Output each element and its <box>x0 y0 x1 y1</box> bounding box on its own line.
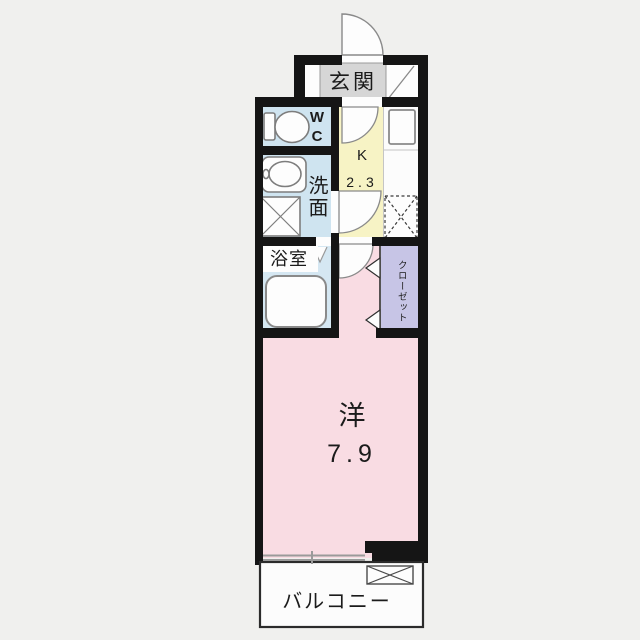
balcony-unit-icon <box>367 566 413 584</box>
floorplan-canvas: 玄関 WC 洗面 K 2.3 浴室 クローゼット 洋 7.9 バルコニー <box>0 0 640 640</box>
appliance-space-hatch-icon <box>385 196 417 238</box>
sink-icon <box>262 157 306 192</box>
washer-pan-icon <box>261 197 300 236</box>
kitchen-label: K <box>341 144 383 166</box>
bathtub-icon <box>266 276 326 327</box>
washroom-label: 洗面 <box>302 156 330 238</box>
toilet-icon <box>264 112 309 143</box>
western-room-size-label: 7.9 <box>314 438 390 470</box>
entrance-door-swing-icon <box>342 14 383 55</box>
balcony-label: バルコニー <box>264 588 410 616</box>
kitchen-size-label: 2.3 <box>334 170 390 194</box>
closet-label: クローゼット <box>392 250 410 332</box>
genkan-label: 玄関 <box>320 63 386 102</box>
bath-label: 浴室 <box>260 245 318 272</box>
wc-label: WC <box>304 106 330 150</box>
western-room-label: 洋 <box>324 398 380 434</box>
